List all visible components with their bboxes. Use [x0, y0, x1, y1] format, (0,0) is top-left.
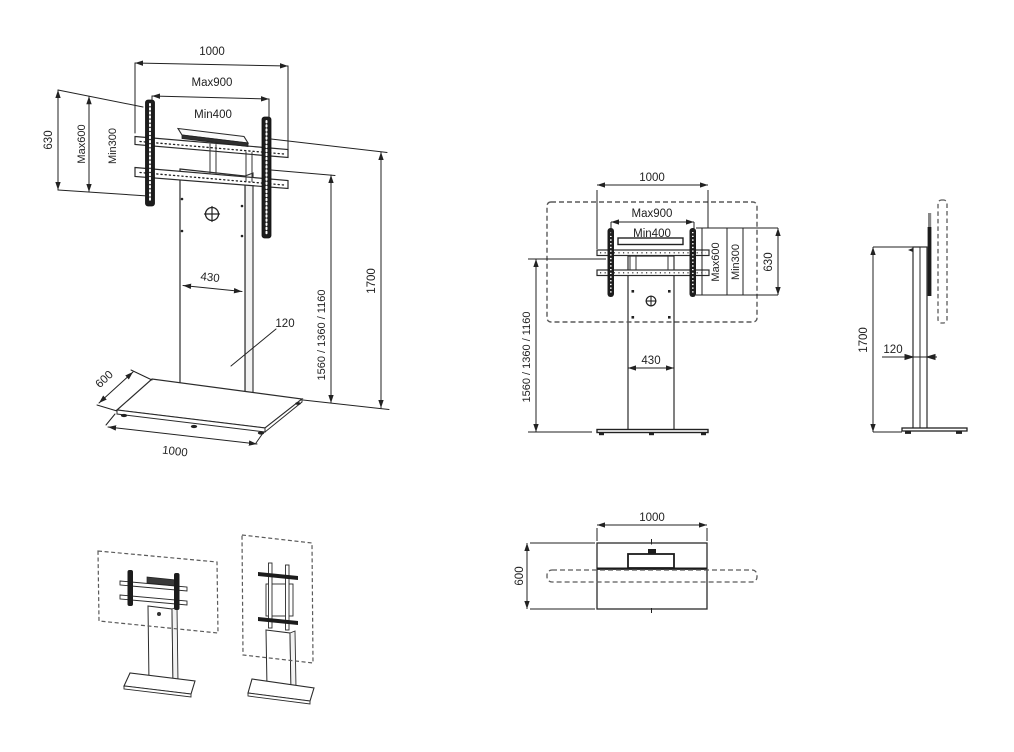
vesa-rail-right-front — [690, 228, 697, 297]
dim-vesa-width-max-label: Max900 — [192, 77, 233, 89]
dim-vesa-height-min-label: Min300 — [107, 128, 119, 164]
vesa-rail-left — [146, 100, 155, 206]
front-dim-vesa-width-max-label: Max900 — [632, 208, 673, 220]
vesa-rail-side — [928, 213, 932, 296]
dim-column-width-label: 430 — [200, 271, 220, 285]
dim-bracket-height-label: 630 — [43, 130, 55, 149]
front-dim-vesa-height-min-label: Min300 — [730, 244, 742, 280]
drawing-svg: 1000 Max900 Min400 630 Max600 Min300 430… — [0, 0, 1014, 752]
top-dim-base-width-label: 1000 — [639, 512, 665, 524]
base-front — [597, 430, 708, 436]
dim-vesa-width-min-label: Min400 — [194, 109, 232, 121]
front-dim-overall-width-label: 1000 — [639, 172, 665, 184]
front-view: 1000 Max900 Min400 430 1560 / 1360 / 116… — [521, 172, 778, 435]
tv-outline-side — [938, 200, 947, 323]
dim-vesa-height-max-label: Max600 — [76, 124, 88, 163]
bracket-portrait — [258, 563, 298, 630]
vesa-rail-left-front — [608, 228, 615, 297]
side-dim-total-height-label: 1700 — [858, 327, 870, 353]
front-dim-vesa-height-max-label: Max600 — [710, 242, 722, 281]
base-perspective — [117, 379, 302, 435]
bracket-front — [597, 228, 709, 319]
front-dim-vesa-width-min-label: Min400 — [633, 228, 671, 240]
orientation-views — [98, 535, 314, 704]
front-dim-column-width-label: 430 — [641, 355, 660, 367]
dim-total-height-label: 1700 — [366, 268, 378, 294]
column-front — [628, 256, 674, 430]
landscape-orientation-view — [98, 551, 218, 697]
perspective-view: 1000 Max900 Min400 630 Max600 Min300 430… — [43, 46, 389, 459]
side-dimension-labels: 1700 120 — [858, 327, 903, 356]
side-view: 1700 120 — [858, 200, 967, 434]
dim-base-width-label: 1000 — [161, 445, 188, 460]
front-dim-mount-heights-label: 1560 / 1360 / 1160 — [521, 312, 533, 403]
top-view: 1000 600 — [514, 512, 757, 613]
column-side — [908, 247, 927, 430]
top-dim-base-depth-label: 600 — [514, 566, 526, 585]
portrait-orientation-view — [242, 535, 314, 704]
base-side — [902, 428, 967, 434]
technical-drawing-sheet: 1000 Max900 Min400 630 Max600 Min300 430… — [0, 0, 1014, 752]
dim-column-depth-label: 120 — [275, 318, 294, 330]
vesa-rail-right — [262, 117, 271, 238]
side-dim-column-depth-label: 120 — [883, 344, 902, 356]
dim-base-depth-label: 600 — [94, 369, 116, 391]
dim-mount-heights-label: 1560 / 1360 / 1160 — [316, 290, 328, 381]
dim-overall-width-label: 1000 — [199, 46, 225, 58]
front-dim-bracket-height-label: 630 — [763, 252, 775, 271]
